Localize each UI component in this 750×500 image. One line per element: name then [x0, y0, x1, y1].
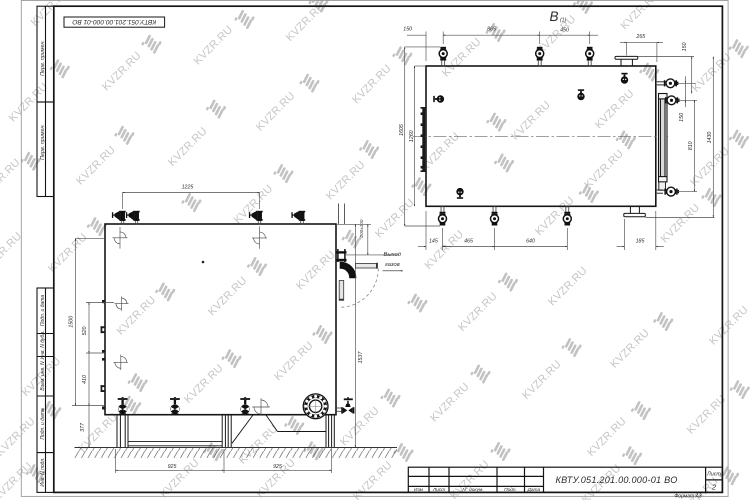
svg-text:1605: 1605: [399, 124, 405, 136]
svg-text:Формат А3: Формат А3: [674, 494, 702, 500]
svg-text:N° докум.: N° докум.: [462, 487, 483, 493]
svg-text:Подп.: Подп.: [504, 487, 517, 493]
svg-text:Перв. примен.: Перв. примен.: [40, 124, 46, 160]
svg-text:185: 185: [636, 239, 645, 245]
svg-text:450: 450: [560, 27, 569, 33]
svg-text:925: 925: [168, 464, 177, 470]
svg-text:150: 150: [403, 27, 412, 33]
svg-text:КВТУ.051.201.00.000-01 ВО: КВТУ.051.201.00.000-01 ВО: [555, 475, 677, 485]
svg-text:1260: 1260: [409, 130, 415, 142]
svg-text:В: В: [550, 9, 559, 24]
svg-text:810: 810: [688, 141, 694, 150]
svg-text:Инв. N дубл.: Инв. N дубл.: [40, 331, 46, 360]
svg-text:(1): (1): [560, 18, 566, 24]
svg-text:640: 640: [526, 239, 535, 245]
svg-text:Лист: Лист: [706, 472, 721, 478]
svg-text:200±100: 200±100: [359, 219, 364, 238]
svg-text:1430: 1430: [707, 132, 713, 144]
svg-text:Лист: Лист: [432, 487, 445, 493]
svg-text:КВТУ.051.201.00.000-01 ВО: КВТУ.051.201.00.000-01 ВО: [72, 18, 156, 25]
svg-text:Изм: Изм: [414, 487, 424, 493]
svg-text:925: 925: [273, 464, 282, 470]
svg-text:1225: 1225: [182, 185, 194, 191]
svg-text:145: 145: [429, 239, 438, 245]
svg-text:410: 410: [82, 375, 88, 384]
svg-text:377: 377: [80, 422, 86, 432]
svg-text:Перв. примен.: Перв. примен.: [40, 40, 46, 76]
svg-text:265: 265: [635, 34, 645, 40]
svg-text:1500: 1500: [69, 316, 75, 328]
svg-text:465: 465: [464, 239, 473, 245]
svg-text:2: 2: [711, 482, 717, 491]
svg-text:Дата: Дата: [526, 487, 540, 493]
svg-text:150: 150: [679, 113, 685, 122]
svg-text:Подп. и дата: Подп. и дата: [40, 295, 46, 327]
svg-text:Взам. инв. N: Взам. инв. N: [40, 361, 46, 391]
svg-text:Подп. и дата: Подп. и дата: [40, 408, 46, 440]
svg-text:Инв. N подл.: Инв. N подл.: [40, 457, 46, 486]
svg-text:газов: газов: [385, 262, 400, 268]
svg-text:1537: 1537: [358, 351, 364, 364]
svg-text:520: 520: [82, 327, 88, 336]
svg-text:865: 865: [487, 27, 496, 33]
svg-text:150: 150: [682, 42, 688, 51]
